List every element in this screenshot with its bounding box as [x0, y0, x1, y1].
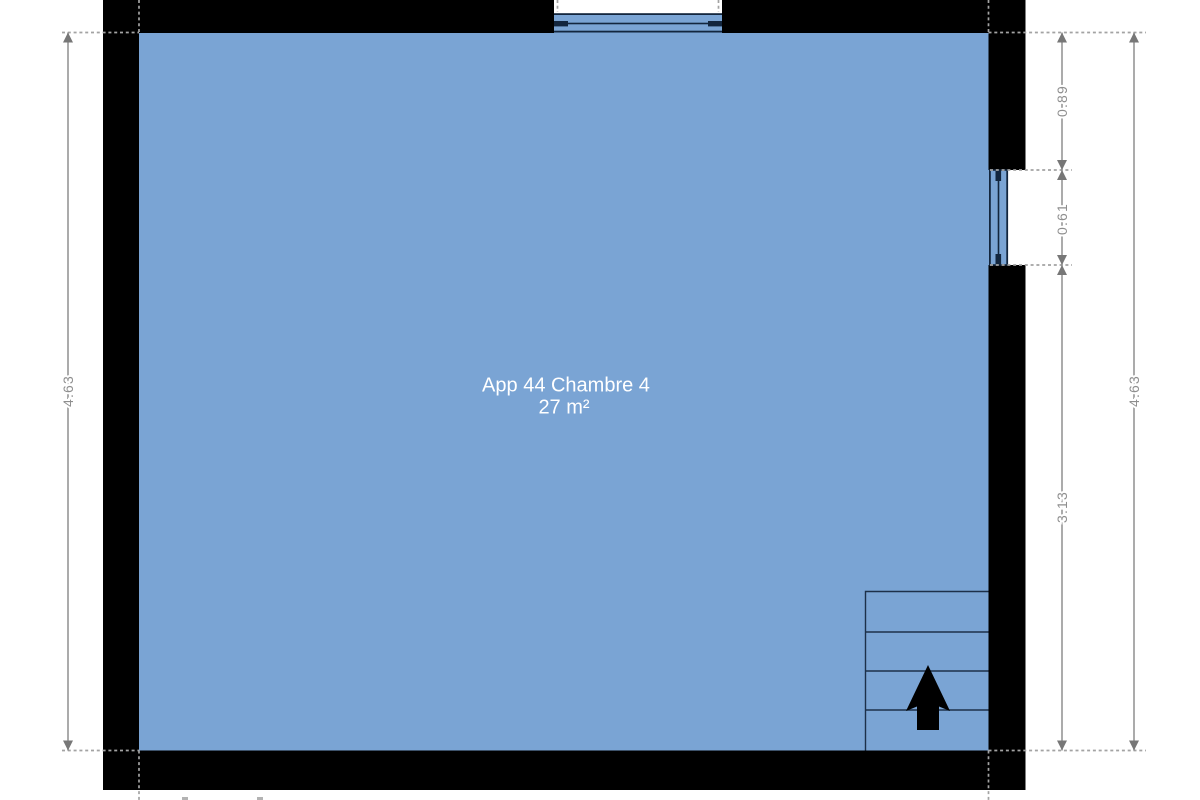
svg-text:27 m²: 27 m² — [538, 397, 589, 419]
svg-text:App 44 Chambre 4: App 44 Chambre 4 — [482, 375, 650, 397]
svg-text:4.63: 4.63 — [60, 375, 76, 407]
svg-text:3.13: 3.13 — [1054, 491, 1070, 523]
svg-text:0.89: 0.89 — [1054, 85, 1070, 117]
svg-text:0.61: 0.61 — [1054, 203, 1070, 235]
svg-text:4.63: 4.63 — [1126, 375, 1142, 407]
